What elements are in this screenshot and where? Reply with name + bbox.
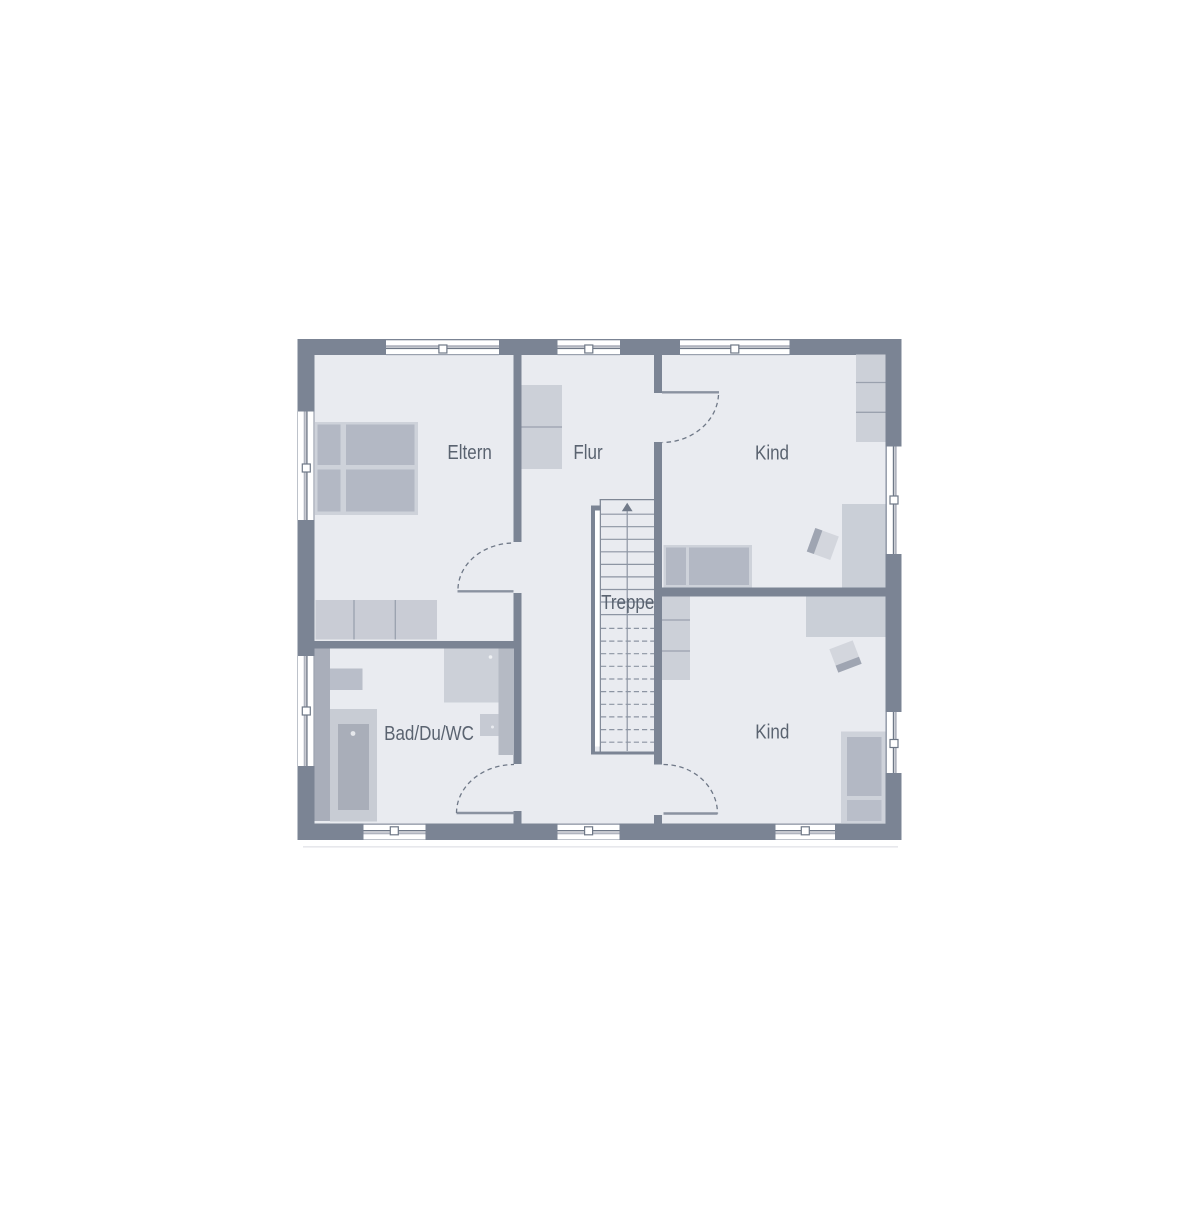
svg-text:Treppe: Treppe <box>601 590 654 613</box>
svg-text:Kind: Kind <box>755 720 789 743</box>
svg-text:Eltern: Eltern <box>447 441 491 464</box>
svg-text:Kind: Kind <box>755 441 789 464</box>
svg-text:Flur: Flur <box>573 441 602 464</box>
svg-text:Bad/Du/WC: Bad/Du/WC <box>384 722 474 745</box>
